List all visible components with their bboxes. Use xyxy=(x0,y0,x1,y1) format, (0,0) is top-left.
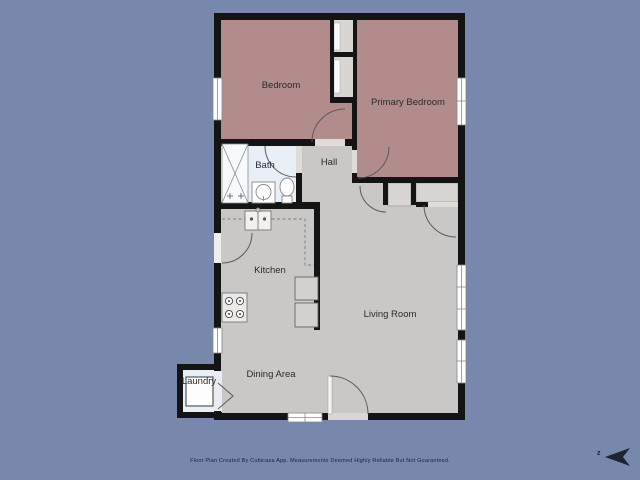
stove xyxy=(222,293,247,322)
wall-left xyxy=(214,120,221,233)
appliance-box xyxy=(295,277,318,300)
bedroom-window xyxy=(213,78,222,120)
wall-hall-closet xyxy=(383,183,388,205)
wall-laundry-left xyxy=(177,364,183,418)
kitchen-door-threshold xyxy=(214,233,221,263)
label-laundry: Laundry xyxy=(182,376,217,387)
wall-left xyxy=(214,263,221,328)
label-living-room: Living Room xyxy=(364,309,417,320)
wall-primary-bottom xyxy=(352,177,458,183)
hall-closet-fill xyxy=(388,183,411,206)
primary-bedroom-window xyxy=(457,78,466,125)
wall-left xyxy=(214,13,221,78)
wall-laundry-bottom xyxy=(177,412,222,418)
front-door-threshold xyxy=(328,413,368,420)
wall-hall-closet xyxy=(411,183,416,205)
wall-living-closet xyxy=(416,202,428,207)
kitchen-sink xyxy=(245,208,271,230)
wall-right xyxy=(458,125,465,265)
dining-window xyxy=(288,413,322,422)
compass: z xyxy=(595,444,635,470)
wall-bedroom-bottom xyxy=(345,139,357,146)
closet-door-slab xyxy=(334,23,340,50)
wall-closet-left xyxy=(330,20,334,100)
living-room-window-1 xyxy=(457,265,466,330)
primary-door-threshold xyxy=(352,150,357,173)
wall-closet-bottom xyxy=(330,97,357,103)
floor-plan-drawing: Bedroom Primary Bedroom Bath Hall Kitche… xyxy=(0,0,640,480)
appliance-box xyxy=(295,303,318,327)
wall-bottom xyxy=(368,413,465,420)
bathroom-sink xyxy=(252,182,275,203)
bath-door-threshold xyxy=(296,146,302,173)
wall-closet-mid xyxy=(334,52,353,57)
closet-door-slab xyxy=(334,60,340,93)
kitchen-window xyxy=(213,328,222,353)
label-dining-area: Dining Area xyxy=(246,369,296,380)
bedroom-door-threshold xyxy=(315,139,345,146)
wall-right xyxy=(458,383,465,420)
wall-right xyxy=(458,330,465,340)
wall-bath-right xyxy=(296,139,302,146)
label-bath: Bath xyxy=(255,160,275,171)
living-closet-fill xyxy=(416,183,458,202)
label-kitchen: Kitchen xyxy=(254,265,286,276)
footer-disclaimer: Floor Plan Created By Cubicasa App. Meas… xyxy=(0,458,640,464)
north-arrow-icon xyxy=(595,444,635,470)
closet-door-threshold xyxy=(428,202,458,207)
wall-closet-right xyxy=(353,20,357,103)
wall-right xyxy=(458,13,465,78)
toilet xyxy=(280,178,294,203)
wall-bottom xyxy=(214,413,288,420)
label-primary-bedroom: Primary Bedroom xyxy=(371,97,445,108)
label-bedroom: Bedroom xyxy=(262,80,301,91)
wall-left xyxy=(214,353,221,371)
label-hall: Hall xyxy=(321,157,337,168)
front-door-slab xyxy=(328,376,332,414)
shower xyxy=(222,144,248,203)
wall-bath-right xyxy=(296,173,302,203)
compass-label: z xyxy=(597,450,601,457)
floor-plan-canvas: Bedroom Primary Bedroom Bath Hall Kitche… xyxy=(0,0,640,480)
living-room-window-2 xyxy=(457,340,466,383)
wall-top xyxy=(214,13,465,20)
bedroom-floor-ext xyxy=(333,100,352,140)
room-fills xyxy=(183,20,458,413)
